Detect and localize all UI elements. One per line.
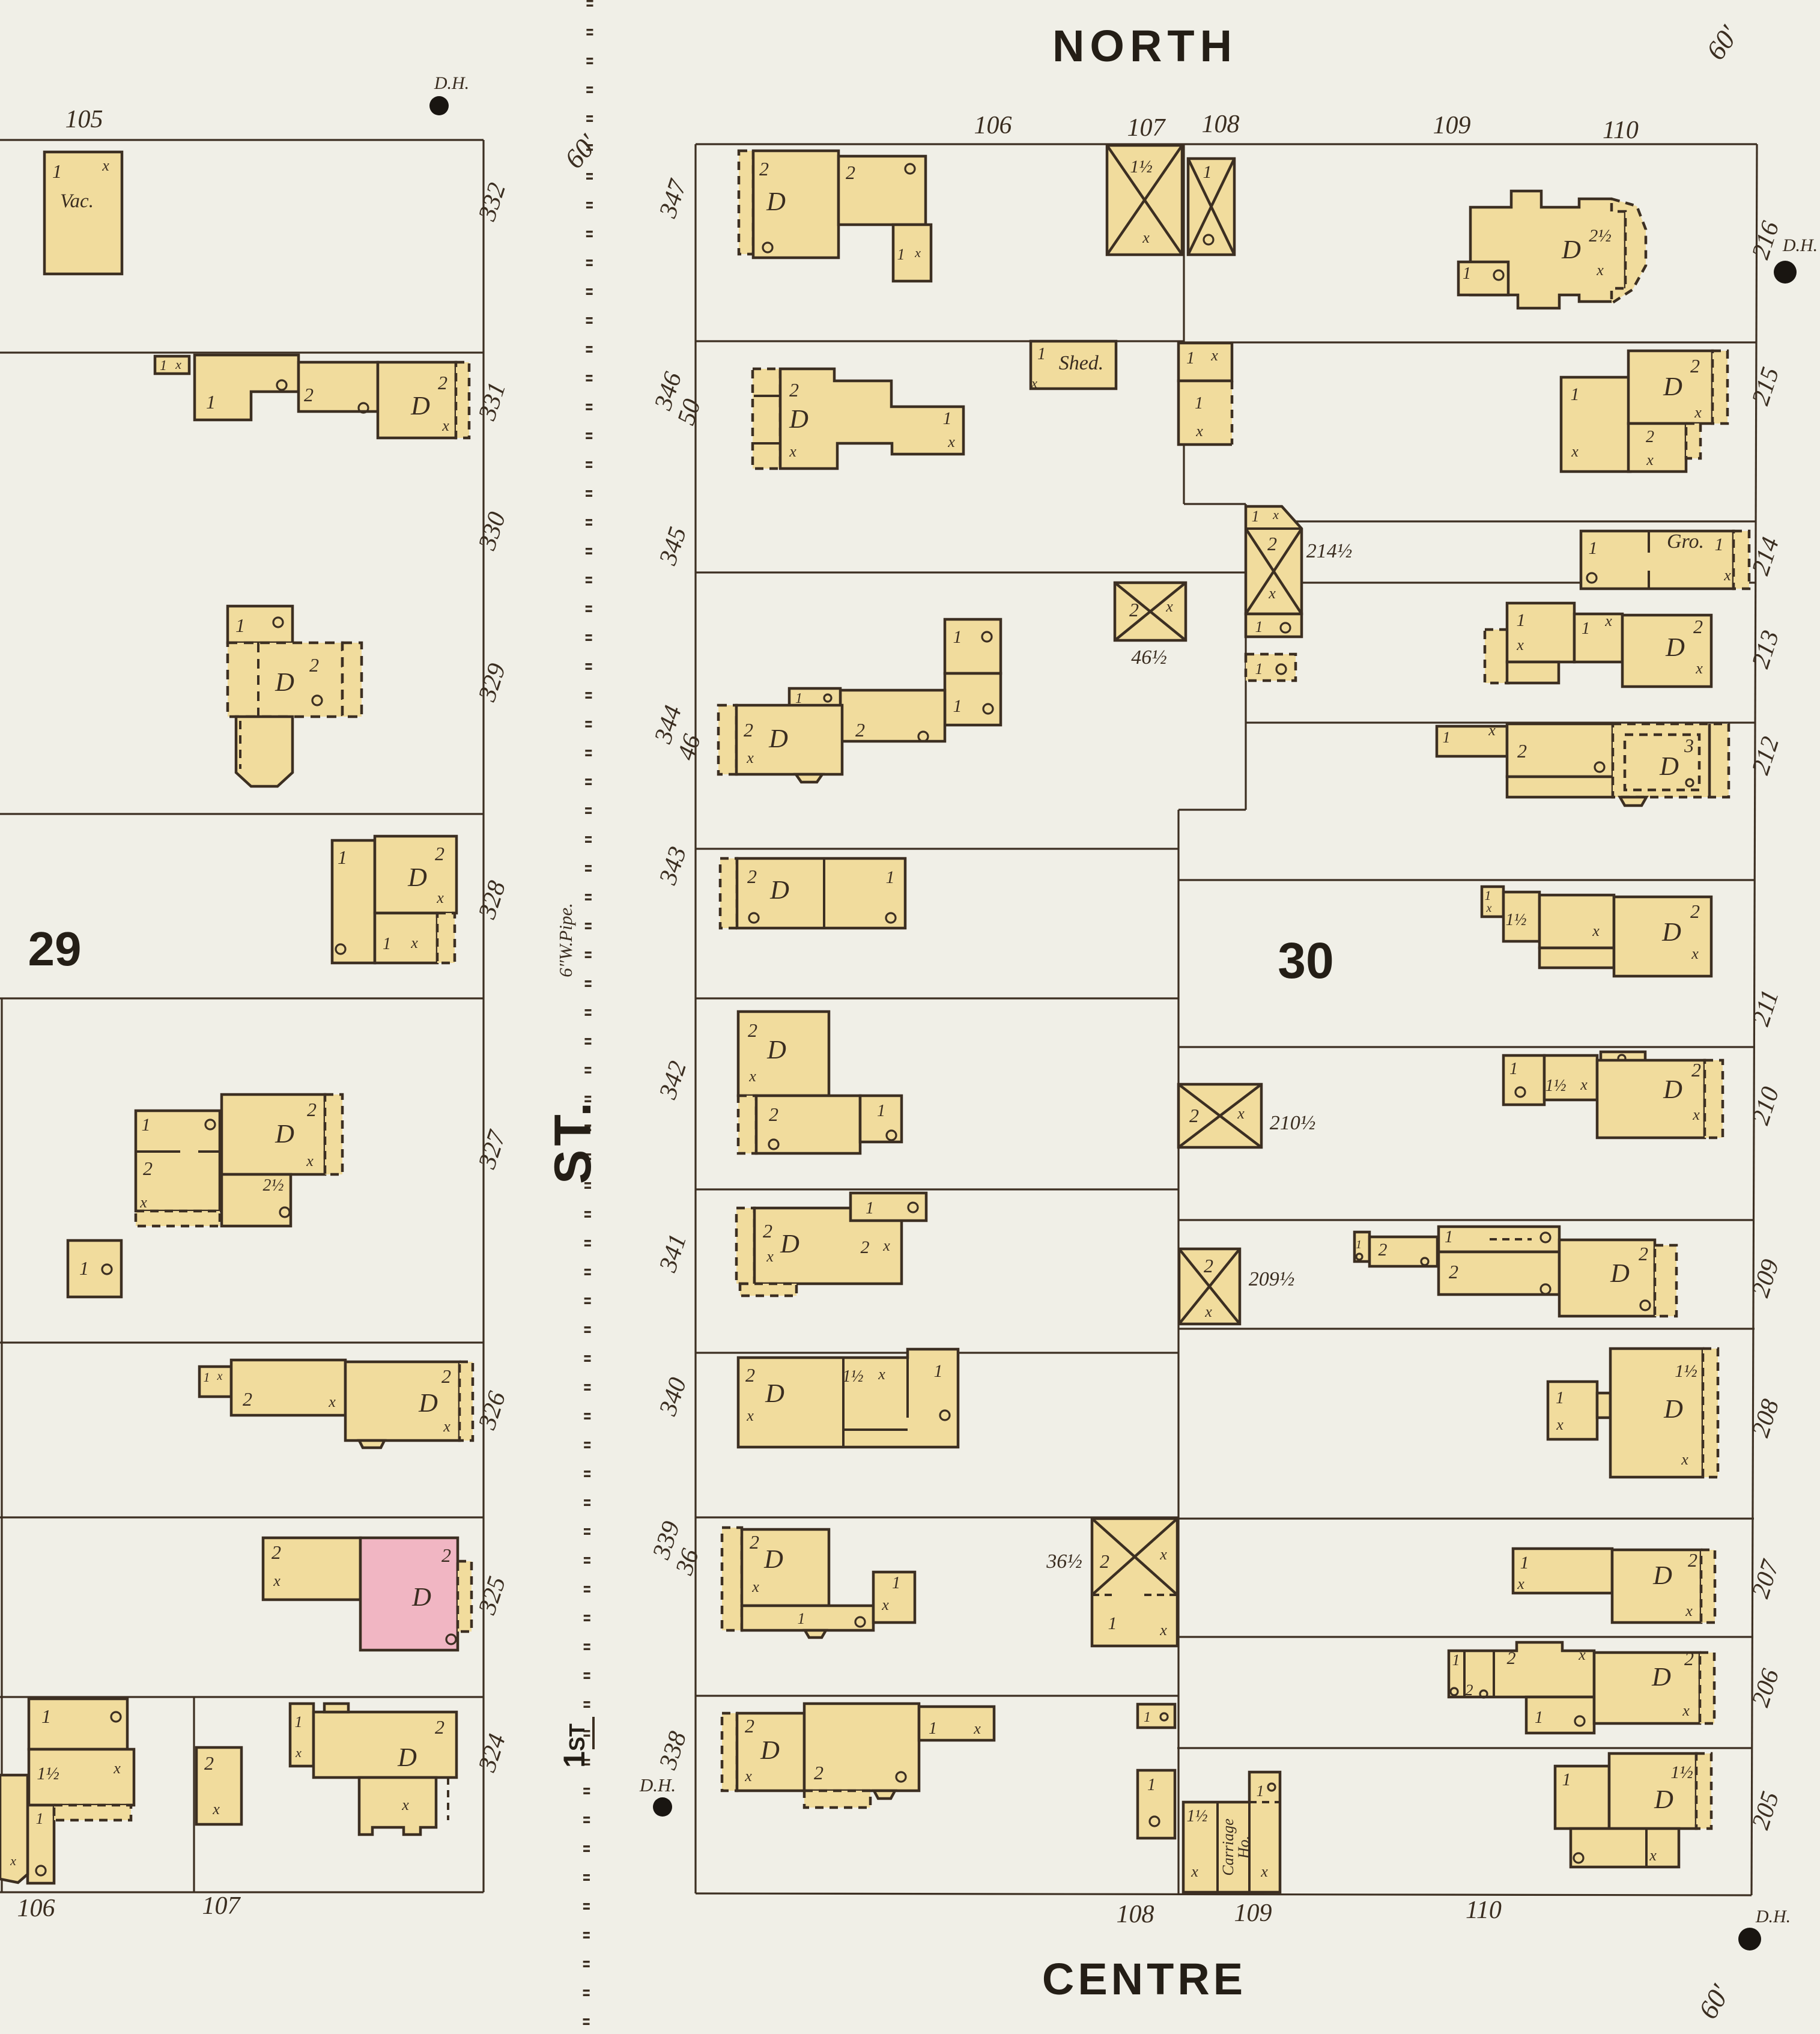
svg-text:1: 1 bbox=[897, 246, 905, 263]
svg-text:D: D bbox=[789, 404, 808, 434]
svg-text:1: 1 bbox=[1255, 660, 1263, 678]
svg-text:2: 2 bbox=[1507, 1648, 1516, 1668]
svg-text:2: 2 bbox=[1646, 428, 1654, 446]
svg-text:x: x bbox=[1681, 1451, 1688, 1468]
svg-text:D: D bbox=[1663, 1394, 1683, 1424]
svg-text:1: 1 bbox=[1452, 1651, 1460, 1669]
svg-text:2: 2 bbox=[438, 372, 447, 393]
svg-text:x: x bbox=[1517, 1575, 1524, 1592]
svg-text:1: 1 bbox=[383, 935, 391, 953]
svg-text:x: x bbox=[1685, 1602, 1693, 1620]
svg-text:1: 1 bbox=[1037, 345, 1046, 363]
svg-text:30: 30 bbox=[1278, 932, 1333, 989]
svg-text:1: 1 bbox=[1147, 1776, 1156, 1794]
svg-text:1: 1 bbox=[235, 615, 245, 636]
svg-text:2: 2 bbox=[861, 1237, 870, 1257]
svg-text:109: 109 bbox=[1433, 112, 1471, 139]
svg-text:x: x bbox=[947, 433, 955, 451]
svg-text:D: D bbox=[1652, 1561, 1672, 1590]
svg-text:x: x bbox=[1695, 660, 1703, 677]
svg-text:2: 2 bbox=[243, 1388, 252, 1410]
svg-text:x: x bbox=[1604, 612, 1612, 630]
svg-text:2: 2 bbox=[204, 1752, 214, 1774]
svg-text:x: x bbox=[1260, 1863, 1268, 1880]
svg-text:D: D bbox=[1663, 1075, 1682, 1104]
svg-text:x: x bbox=[1165, 598, 1173, 615]
svg-text:1½: 1½ bbox=[1675, 1361, 1697, 1381]
svg-text:1: 1 bbox=[338, 846, 347, 868]
svg-text:D: D bbox=[763, 1544, 783, 1574]
svg-text:1: 1 bbox=[1445, 1228, 1453, 1246]
svg-text:2: 2 bbox=[1204, 1255, 1213, 1277]
svg-text:36½: 36½ bbox=[1046, 1550, 1082, 1573]
svg-text:D: D bbox=[275, 1119, 294, 1149]
svg-text:2: 2 bbox=[1639, 1243, 1648, 1264]
svg-text:x: x bbox=[1682, 1702, 1690, 1719]
svg-text:214½: 214½ bbox=[1306, 540, 1353, 562]
svg-text:x: x bbox=[1578, 1646, 1586, 1663]
svg-text:2: 2 bbox=[1466, 1681, 1473, 1699]
svg-text:2: 2 bbox=[745, 1715, 754, 1737]
svg-text:D: D bbox=[418, 1388, 438, 1418]
svg-text:x: x bbox=[746, 1407, 754, 1424]
svg-text:x: x bbox=[1142, 229, 1150, 246]
svg-text:2: 2 bbox=[1690, 900, 1700, 922]
svg-text:D: D bbox=[1661, 917, 1681, 947]
svg-text:x: x bbox=[1159, 1621, 1167, 1639]
svg-text:Vac.: Vac. bbox=[60, 190, 94, 212]
svg-text:x: x bbox=[914, 245, 921, 260]
svg-text:1: 1 bbox=[295, 1713, 303, 1731]
svg-text:2: 2 bbox=[745, 1364, 755, 1386]
svg-text:1: 1 bbox=[41, 1705, 51, 1727]
svg-text:x: x bbox=[744, 1767, 752, 1785]
svg-text:1: 1 bbox=[1356, 1238, 1362, 1251]
svg-text:2: 2 bbox=[143, 1158, 153, 1179]
svg-text:D: D bbox=[1651, 1662, 1671, 1692]
svg-text:x: x bbox=[1268, 584, 1276, 602]
svg-text:2: 2 bbox=[1100, 1550, 1109, 1572]
svg-text:Gro.: Gro. bbox=[1667, 530, 1704, 553]
svg-text:1: 1 bbox=[36, 1810, 44, 1827]
svg-text:107: 107 bbox=[1127, 114, 1166, 142]
svg-text:1: 1 bbox=[1589, 538, 1598, 558]
svg-text:x: x bbox=[1596, 261, 1604, 279]
svg-text:107: 107 bbox=[202, 1892, 241, 1920]
svg-text:x: x bbox=[1486, 902, 1492, 915]
svg-text:2: 2 bbox=[763, 1220, 772, 1242]
svg-text:2: 2 bbox=[307, 1099, 317, 1120]
svg-text:x: x bbox=[1204, 1303, 1212, 1320]
svg-text:1: 1 bbox=[953, 627, 962, 647]
svg-text:1: 1 bbox=[160, 358, 167, 374]
svg-text:1: 1 bbox=[52, 160, 62, 182]
svg-text:x: x bbox=[1692, 1106, 1700, 1123]
svg-text:2: 2 bbox=[1688, 1549, 1697, 1571]
svg-text:x: x bbox=[882, 1237, 890, 1254]
svg-text:1: 1 bbox=[1144, 1710, 1151, 1725]
svg-text:x: x bbox=[748, 1067, 756, 1085]
svg-text:x: x bbox=[751, 1578, 759, 1595]
svg-text:2: 2 bbox=[1517, 740, 1527, 762]
svg-text:1½: 1½ bbox=[37, 1764, 59, 1784]
svg-text:109: 109 bbox=[1234, 1899, 1272, 1927]
svg-text:2: 2 bbox=[1691, 1059, 1701, 1081]
svg-text:1: 1 bbox=[142, 1115, 151, 1135]
svg-text:1½: 1½ bbox=[1670, 1762, 1693, 1782]
svg-text:D: D bbox=[768, 724, 788, 753]
svg-text:x: x bbox=[328, 1393, 336, 1410]
svg-text:D: D bbox=[1659, 751, 1679, 781]
svg-text:1: 1 bbox=[1443, 729, 1451, 746]
svg-text:2: 2 bbox=[855, 719, 865, 741]
svg-text:x: x bbox=[1691, 945, 1699, 962]
svg-text:1: 1 bbox=[1517, 610, 1526, 630]
svg-text:2: 2 bbox=[1693, 616, 1703, 637]
svg-text:1½: 1½ bbox=[1187, 1807, 1208, 1826]
svg-text:1: 1 bbox=[1108, 1614, 1117, 1633]
svg-text:2: 2 bbox=[1267, 533, 1277, 554]
svg-text:2: 2 bbox=[759, 158, 769, 180]
svg-text:D: D bbox=[1610, 1258, 1630, 1288]
svg-text:2: 2 bbox=[1379, 1240, 1388, 1260]
svg-text:x: x bbox=[175, 357, 181, 372]
svg-text:D: D bbox=[407, 863, 427, 892]
svg-text:x: x bbox=[306, 1152, 314, 1170]
svg-text:x: x bbox=[139, 1194, 147, 1211]
svg-text:x: x bbox=[436, 889, 444, 906]
svg-text:x: x bbox=[1516, 636, 1524, 654]
svg-text:D.H.: D.H. bbox=[434, 73, 469, 93]
svg-text:D: D bbox=[765, 1379, 784, 1408]
svg-text:209½: 209½ bbox=[1249, 1268, 1295, 1290]
svg-text:2: 2 bbox=[747, 866, 757, 887]
svg-text:2½: 2½ bbox=[1589, 226, 1612, 246]
svg-text:2: 2 bbox=[1449, 1261, 1458, 1283]
svg-text:Ho.: Ho. bbox=[1235, 1836, 1252, 1859]
svg-text:1: 1 bbox=[1571, 384, 1580, 404]
svg-text:x: x bbox=[1210, 347, 1218, 364]
svg-text:1: 1 bbox=[1520, 1553, 1529, 1573]
svg-text:6″W.Pipe.: 6″W.Pipe. bbox=[555, 903, 576, 977]
svg-text:2: 2 bbox=[1129, 599, 1139, 621]
svg-text:x: x bbox=[1195, 422, 1203, 440]
svg-text:1: 1 bbox=[1509, 1060, 1518, 1078]
svg-text:1: 1 bbox=[1582, 619, 1590, 638]
svg-text:2: 2 bbox=[744, 719, 753, 741]
svg-text:2: 2 bbox=[789, 379, 799, 401]
svg-text:NORTH: NORTH bbox=[1052, 21, 1237, 71]
svg-text:x: x bbox=[1592, 922, 1600, 940]
svg-text:ST.: ST. bbox=[544, 1099, 602, 1184]
svg-text:x: x bbox=[881, 1596, 889, 1614]
svg-text:1: 1 bbox=[1252, 508, 1260, 525]
svg-text:46½: 46½ bbox=[1131, 646, 1167, 669]
svg-text:x: x bbox=[789, 443, 796, 460]
svg-text:x: x bbox=[878, 1365, 885, 1383]
svg-text:1: 1 bbox=[798, 1610, 805, 1627]
svg-text:2: 2 bbox=[435, 843, 444, 864]
svg-text:1½: 1½ bbox=[1130, 157, 1153, 177]
svg-text:1: 1 bbox=[886, 867, 895, 887]
svg-text:2½: 2½ bbox=[263, 1176, 284, 1195]
svg-text:D: D bbox=[1663, 372, 1682, 401]
svg-text:D: D bbox=[769, 875, 789, 905]
svg-text:D: D bbox=[780, 1229, 799, 1258]
svg-text:D: D bbox=[411, 1582, 431, 1612]
svg-text:1: 1 bbox=[1562, 1770, 1571, 1790]
svg-text:D: D bbox=[410, 391, 430, 420]
svg-text:1: 1 bbox=[929, 1719, 937, 1738]
svg-text:110: 110 bbox=[1466, 1896, 1502, 1924]
svg-text:210½: 210½ bbox=[1270, 1112, 1316, 1134]
svg-text:D: D bbox=[760, 1735, 780, 1765]
svg-text:2: 2 bbox=[271, 1541, 281, 1563]
svg-text:x: x bbox=[1237, 1105, 1245, 1122]
svg-text:1: 1 bbox=[1485, 888, 1491, 903]
svg-text:2: 2 bbox=[846, 162, 855, 183]
svg-text:2: 2 bbox=[769, 1104, 778, 1125]
svg-text:1: 1 bbox=[206, 391, 216, 413]
svg-text:x: x bbox=[973, 1720, 981, 1737]
svg-text:1: 1 bbox=[1203, 162, 1212, 182]
svg-text:x: x bbox=[1556, 1416, 1564, 1433]
svg-text:29: 29 bbox=[28, 922, 82, 976]
svg-text:x: x bbox=[1031, 375, 1037, 390]
svg-text:1: 1 bbox=[877, 1102, 885, 1120]
svg-text:1: 1 bbox=[1195, 394, 1203, 413]
svg-text:1½: 1½ bbox=[843, 1367, 864, 1386]
svg-text:D.H.: D.H. bbox=[1782, 235, 1818, 255]
svg-text:2: 2 bbox=[1690, 355, 1700, 377]
svg-text:1: 1 bbox=[1715, 535, 1724, 554]
svg-text:x: x bbox=[1159, 1546, 1167, 1563]
svg-text:x: x bbox=[443, 1418, 450, 1435]
svg-text:Shed.: Shed. bbox=[1059, 352, 1104, 374]
svg-text:D: D bbox=[397, 1743, 417, 1772]
svg-text:106: 106 bbox=[974, 112, 1012, 139]
svg-text:1: 1 bbox=[1463, 264, 1471, 283]
svg-text:108: 108 bbox=[1202, 111, 1240, 138]
svg-text:x: x bbox=[102, 157, 109, 174]
svg-text:x: x bbox=[273, 1572, 281, 1589]
svg-text:D.H.: D.H. bbox=[1755, 1907, 1791, 1926]
svg-text:x: x bbox=[1649, 1847, 1657, 1864]
svg-text:1: 1 bbox=[892, 1574, 900, 1592]
svg-text:D: D bbox=[1654, 1785, 1673, 1814]
svg-text:x: x bbox=[113, 1759, 121, 1777]
svg-text:D: D bbox=[1561, 235, 1581, 264]
svg-text:2: 2 bbox=[441, 1544, 451, 1566]
svg-text:1: 1 bbox=[934, 1361, 943, 1381]
svg-text:1: 1 bbox=[943, 408, 952, 428]
svg-text:Carriage: Carriage bbox=[1219, 1818, 1237, 1875]
svg-text:x: x bbox=[1723, 566, 1731, 584]
svg-text:x: x bbox=[766, 1248, 774, 1265]
svg-text:105: 105 bbox=[65, 106, 103, 133]
svg-text:110: 110 bbox=[1603, 117, 1639, 144]
svg-text:1: 1 bbox=[1255, 618, 1263, 636]
svg-text:2: 2 bbox=[304, 384, 314, 405]
svg-text:x: x bbox=[441, 417, 449, 434]
svg-text:2: 2 bbox=[750, 1531, 759, 1553]
svg-text:CENTRE: CENTRE bbox=[1042, 1954, 1246, 2004]
svg-text:2: 2 bbox=[309, 654, 319, 676]
svg-text:2: 2 bbox=[441, 1365, 451, 1387]
svg-text:x: x bbox=[746, 749, 754, 767]
svg-text:106: 106 bbox=[17, 1895, 55, 1922]
svg-text:2: 2 bbox=[814, 1762, 824, 1784]
svg-text:2: 2 bbox=[748, 1019, 757, 1041]
svg-text:1½: 1½ bbox=[1545, 1076, 1567, 1095]
svg-text:x: x bbox=[295, 1745, 302, 1760]
svg-text:108: 108 bbox=[1117, 1901, 1154, 1928]
svg-text:1½: 1½ bbox=[1506, 911, 1527, 929]
svg-text:1: 1 bbox=[1186, 349, 1195, 368]
svg-text:x: x bbox=[1646, 451, 1654, 469]
svg-text:x: x bbox=[10, 1853, 16, 1868]
svg-text:1: 1 bbox=[866, 1199, 874, 1218]
svg-text:x: x bbox=[401, 1796, 409, 1814]
svg-text:D.H.: D.H. bbox=[639, 1774, 676, 1796]
svg-text:3: 3 bbox=[1684, 735, 1694, 756]
svg-text:1: 1 bbox=[1257, 1782, 1264, 1800]
svg-text:x: x bbox=[212, 1800, 220, 1818]
svg-text:x: x bbox=[1571, 443, 1579, 460]
svg-text:2: 2 bbox=[435, 1716, 444, 1738]
svg-text:D: D bbox=[766, 1035, 786, 1064]
svg-text:D: D bbox=[766, 187, 786, 216]
svg-text:x: x bbox=[1694, 404, 1702, 421]
svg-text:x: x bbox=[1272, 507, 1279, 522]
svg-text:1: 1 bbox=[79, 1257, 89, 1279]
svg-text:x: x bbox=[1580, 1076, 1588, 1093]
svg-text:x: x bbox=[1191, 1863, 1198, 1880]
svg-text:2: 2 bbox=[1189, 1105, 1199, 1126]
svg-text:D: D bbox=[275, 667, 294, 697]
svg-text:1: 1 bbox=[204, 1370, 210, 1385]
svg-text:x: x bbox=[1488, 721, 1496, 739]
svg-text:1: 1 bbox=[1535, 1708, 1543, 1727]
svg-text:1: 1 bbox=[1556, 1389, 1564, 1407]
svg-text:x: x bbox=[217, 1370, 223, 1383]
svg-text:x: x bbox=[410, 934, 418, 952]
svg-text:D: D bbox=[1665, 633, 1685, 662]
svg-text:2: 2 bbox=[1684, 1648, 1694, 1669]
svg-text:1: 1 bbox=[953, 696, 962, 716]
